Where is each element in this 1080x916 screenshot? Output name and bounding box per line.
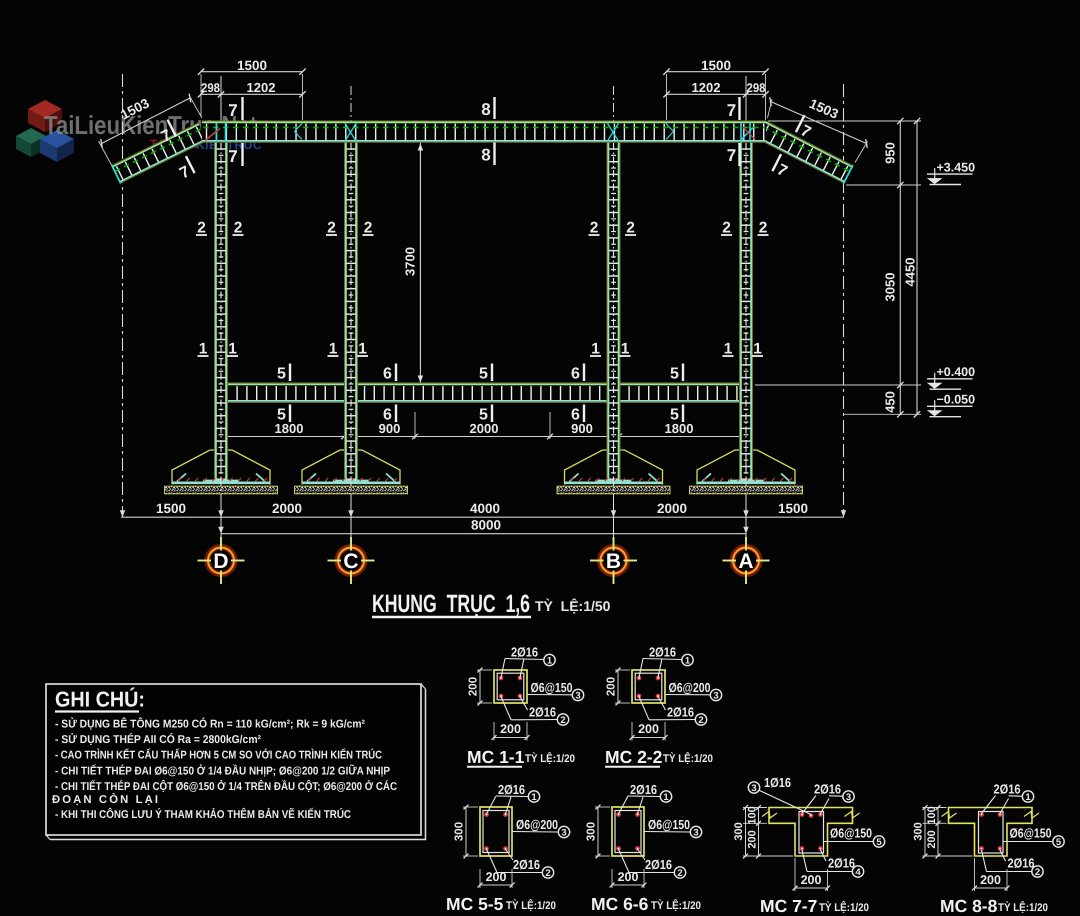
svg-text:- SỬ DỤNG THÉP AII CÓ Ra = 280: - SỬ DỤNG THÉP AII CÓ Ra = 2800kG/cm² bbox=[55, 732, 261, 746]
svg-text:GHI CHÚ:: GHI CHÚ: bbox=[55, 687, 145, 712]
svg-text:300: 300 bbox=[733, 822, 745, 840]
svg-text:1: 1 bbox=[724, 341, 733, 358]
svg-text:3: 3 bbox=[751, 783, 756, 794]
svg-text:A: A bbox=[738, 550, 753, 573]
svg-text:4: 4 bbox=[855, 867, 861, 878]
svg-text:3: 3 bbox=[561, 827, 566, 838]
svg-text:TỲ LỆ:1/20: TỲ LỆ:1/20 bbox=[651, 899, 701, 912]
svg-text:7: 7 bbox=[228, 147, 237, 166]
svg-text:TỲ LỆ:1/50: TỲ LỆ:1/50 bbox=[535, 598, 611, 614]
svg-text:3: 3 bbox=[713, 690, 718, 701]
svg-text:200: 200 bbox=[618, 870, 639, 884]
svg-text:1: 1 bbox=[1025, 792, 1031, 803]
svg-text:B: B bbox=[606, 550, 621, 573]
svg-text:1202: 1202 bbox=[692, 80, 721, 95]
svg-text:2Ø16: 2Ø16 bbox=[529, 705, 556, 720]
svg-text:100: 100 bbox=[926, 806, 938, 824]
svg-text:1: 1 bbox=[531, 792, 537, 803]
svg-text:6: 6 bbox=[383, 366, 392, 383]
svg-text:200: 200 bbox=[500, 722, 521, 736]
svg-text:7: 7 bbox=[727, 101, 736, 120]
svg-text:300: 300 bbox=[454, 822, 466, 841]
svg-text:5: 5 bbox=[670, 366, 679, 383]
svg-text:298: 298 bbox=[747, 81, 766, 95]
svg-text:300: 300 bbox=[913, 822, 925, 840]
svg-text:2: 2 bbox=[590, 220, 599, 237]
svg-text:+3.450: +3.450 bbox=[937, 160, 976, 174]
svg-text:KHUNG TRỤC 1,6: KHUNG TRỤC 1,6 bbox=[372, 590, 530, 618]
svg-text:3: 3 bbox=[575, 690, 580, 701]
svg-text:200: 200 bbox=[468, 677, 480, 696]
svg-text:5: 5 bbox=[277, 366, 286, 383]
svg-text:2Ø16: 2Ø16 bbox=[630, 782, 657, 797]
svg-text:2Ø16: 2Ø16 bbox=[1008, 856, 1035, 871]
svg-text:2: 2 bbox=[364, 220, 373, 237]
svg-text:5: 5 bbox=[1056, 837, 1062, 848]
svg-text:3050: 3050 bbox=[883, 273, 898, 302]
svg-text:MC 7-7: MC 7-7 bbox=[760, 896, 817, 916]
svg-text:TỲ LỆ:1/20: TỲ LỆ:1/20 bbox=[998, 901, 1048, 914]
svg-text:Ø6@150: Ø6@150 bbox=[830, 826, 872, 841]
svg-text:5: 5 bbox=[670, 407, 679, 424]
svg-text:1: 1 bbox=[753, 341, 762, 358]
svg-text:1: 1 bbox=[591, 341, 600, 358]
svg-text:1: 1 bbox=[329, 341, 338, 358]
svg-text:200: 200 bbox=[606, 677, 618, 696]
svg-text:100: 100 bbox=[747, 806, 759, 824]
svg-text:1: 1 bbox=[663, 792, 669, 803]
svg-text:5: 5 bbox=[479, 366, 488, 383]
svg-text:TỲ LỆ:1/20: TỲ LỆ:1/20 bbox=[663, 752, 713, 765]
svg-text:D: D bbox=[213, 550, 228, 573]
svg-text:200: 200 bbox=[486, 870, 507, 884]
svg-text:300: 300 bbox=[586, 822, 598, 841]
svg-text:200: 200 bbox=[980, 873, 1001, 887]
svg-text:2: 2 bbox=[677, 868, 682, 879]
svg-text:200: 200 bbox=[801, 873, 822, 887]
svg-text:MC 1-1: MC 1-1 bbox=[467, 747, 525, 767]
svg-text:- CHI TIẾT THÉP ĐAI CỘT Ø6@150: - CHI TIẾT THÉP ĐAI CỘT Ø6@150 Ở 1/4 TRÊ… bbox=[55, 779, 397, 793]
svg-text:Ø6@200: Ø6@200 bbox=[669, 680, 711, 695]
svg-text:1500: 1500 bbox=[701, 58, 731, 73]
svg-text:Ø6@150: Ø6@150 bbox=[648, 817, 690, 832]
svg-text:1Ø16: 1Ø16 bbox=[764, 775, 791, 790]
svg-text:ĐOẠN CÒN LẠI: ĐOẠN CÒN LẠI bbox=[52, 792, 158, 806]
svg-text:3700: 3700 bbox=[403, 247, 418, 276]
svg-text:2000: 2000 bbox=[657, 501, 687, 516]
svg-text:2Ø16: 2Ø16 bbox=[645, 857, 672, 872]
svg-text:2: 2 bbox=[234, 220, 243, 237]
svg-text:TỲ LỆ:1/20: TỲ LỆ:1/20 bbox=[819, 901, 869, 914]
svg-text:MC 6-6: MC 6-6 bbox=[591, 894, 649, 914]
svg-text:6: 6 bbox=[383, 407, 392, 424]
svg-text:Ø6@150: Ø6@150 bbox=[531, 680, 573, 695]
svg-text:2Ø16: 2Ø16 bbox=[513, 857, 540, 872]
svg-text:MC 8-8: MC 8-8 bbox=[940, 896, 998, 916]
svg-text:950: 950 bbox=[883, 142, 898, 164]
svg-text:2: 2 bbox=[197, 220, 206, 237]
svg-text:200: 200 bbox=[926, 830, 938, 848]
svg-text:Ø6@200: Ø6@200 bbox=[516, 817, 558, 832]
svg-text:8000: 8000 bbox=[471, 518, 501, 533]
svg-text:3: 3 bbox=[693, 827, 698, 838]
svg-text:2: 2 bbox=[545, 868, 550, 879]
svg-text:−0.050: −0.050 bbox=[937, 393, 976, 407]
svg-text:2Ø16: 2Ø16 bbox=[814, 782, 841, 797]
svg-text:C: C bbox=[343, 550, 358, 573]
svg-text:2000: 2000 bbox=[272, 501, 302, 516]
svg-text:+0.400: +0.400 bbox=[937, 365, 976, 379]
svg-text:4450: 4450 bbox=[903, 258, 918, 287]
svg-text:8: 8 bbox=[481, 100, 490, 119]
svg-text:8: 8 bbox=[481, 146, 490, 165]
svg-text:4000: 4000 bbox=[470, 501, 500, 516]
svg-text:1: 1 bbox=[358, 341, 367, 358]
svg-text:3: 3 bbox=[846, 792, 851, 803]
svg-text:5: 5 bbox=[479, 407, 488, 424]
svg-text:1: 1 bbox=[621, 341, 630, 358]
svg-text:5: 5 bbox=[876, 837, 882, 848]
svg-text:2Ø16: 2Ø16 bbox=[994, 782, 1021, 797]
svg-text:2: 2 bbox=[759, 220, 768, 237]
svg-text:2: 2 bbox=[722, 220, 731, 237]
svg-text:2Ø16: 2Ø16 bbox=[667, 705, 694, 720]
svg-text:1500: 1500 bbox=[778, 501, 808, 516]
svg-text:5: 5 bbox=[277, 407, 286, 424]
svg-text:Ø6@150: Ø6@150 bbox=[1010, 826, 1052, 841]
svg-text:2Ø16: 2Ø16 bbox=[511, 645, 538, 660]
svg-text:1500: 1500 bbox=[237, 58, 267, 73]
svg-text:2: 2 bbox=[327, 220, 336, 237]
svg-text:1: 1 bbox=[685, 655, 691, 666]
svg-text:- CAO TRÌNH KẾT CẤU THẤP HƠN 5: - CAO TRÌNH KẾT CẤU THẤP HƠN 5 CM SO VỚI… bbox=[55, 748, 382, 762]
svg-text:TỲ LỆ:1/20: TỲ LỆ:1/20 bbox=[525, 752, 575, 765]
svg-text:2Ø16: 2Ø16 bbox=[828, 856, 855, 871]
svg-text:298: 298 bbox=[201, 81, 220, 95]
svg-text:2Ø16: 2Ø16 bbox=[498, 782, 525, 797]
svg-text:6: 6 bbox=[571, 407, 580, 424]
svg-text:- SỬ DỤNG BÊ TÔNG M250 CÓ Rn =: - SỬ DỤNG BÊ TÔNG M250 CÓ Rn = 110 kG/cm… bbox=[55, 717, 365, 731]
svg-text:1500: 1500 bbox=[156, 501, 186, 516]
svg-text:7: 7 bbox=[228, 101, 237, 120]
svg-text:- KHI THI CÔNG LƯU Ý THAM KHẢO: - KHI THI CÔNG LƯU Ý THAM KHẢO THÊM BẢN … bbox=[55, 807, 351, 821]
svg-text:MC 2-2: MC 2-2 bbox=[605, 747, 663, 767]
svg-text:2: 2 bbox=[626, 220, 635, 237]
svg-text:1800: 1800 bbox=[665, 421, 694, 436]
svg-text:2: 2 bbox=[698, 715, 703, 726]
svg-text:2: 2 bbox=[560, 715, 565, 726]
svg-text:1: 1 bbox=[547, 655, 553, 666]
svg-text:7: 7 bbox=[727, 146, 736, 165]
svg-text:200: 200 bbox=[638, 722, 659, 736]
svg-text:6: 6 bbox=[571, 366, 580, 383]
svg-text:2: 2 bbox=[1035, 867, 1040, 878]
svg-text:1: 1 bbox=[199, 341, 208, 358]
svg-text:200: 200 bbox=[747, 830, 759, 848]
svg-text:450: 450 bbox=[883, 391, 898, 413]
svg-text:2Ø16: 2Ø16 bbox=[649, 645, 676, 660]
svg-text:1: 1 bbox=[228, 341, 237, 358]
svg-text:- CHI TIẾT THÉP ĐAI Ø6@150 Ở 1: - CHI TIẾT THÉP ĐAI Ø6@150 Ở 1/4 ĐẦU NHỊ… bbox=[55, 764, 390, 778]
svg-text:MC 5-5: MC 5-5 bbox=[446, 894, 504, 914]
svg-text:TỲ LỆ:1/20: TỲ LỆ:1/20 bbox=[506, 899, 556, 912]
svg-text:1202: 1202 bbox=[247, 80, 276, 95]
